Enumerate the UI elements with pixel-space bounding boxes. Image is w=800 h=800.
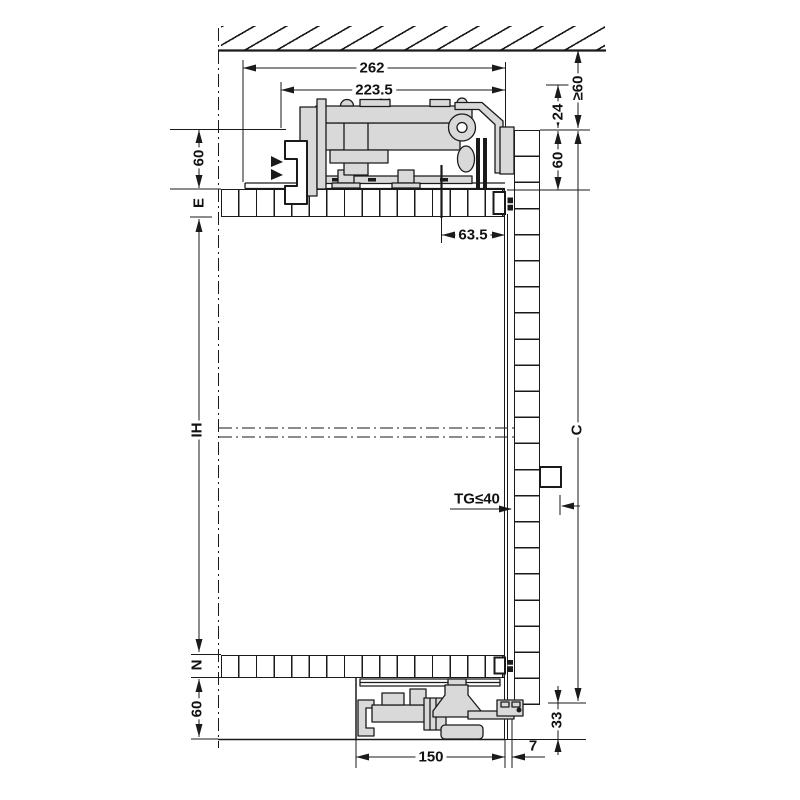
dim-24-label: 24	[549, 102, 568, 123]
dim-ge60-label: ≥60	[569, 74, 588, 103]
extension-lines	[170, 60, 590, 768]
gear-body	[308, 123, 460, 150]
clamp-bar-1	[476, 138, 480, 188]
bottom-panel-end-cap	[495, 658, 506, 674]
dim-tg40-label: TG≤40	[451, 491, 503, 508]
dim-7-label: 7	[526, 738, 540, 755]
adjust-cam	[458, 146, 475, 172]
dim-e-label: E	[190, 196, 209, 210]
top-panel-end-cap	[494, 192, 506, 214]
panel-end-caps	[494, 192, 514, 674]
adjust-mark-1	[271, 156, 283, 167]
top-running-gear	[245, 95, 514, 218]
dimension-lines	[199, 50, 580, 757]
hanger-bolt-right	[398, 170, 414, 183]
dim-63-5-label: 63.5	[455, 227, 490, 244]
door-top-bracket	[500, 127, 514, 174]
dim-n-label: N	[188, 658, 207, 673]
dim-223-5-label: 223.5	[352, 82, 396, 99]
screw-dome-1	[341, 100, 354, 106]
guide-foot	[441, 725, 483, 739]
dim-262-label: 262	[356, 60, 387, 77]
dim-c-label: C	[568, 423, 587, 438]
roller-axle	[457, 123, 467, 133]
dim-60-left-top-label: 60	[190, 148, 209, 169]
dim-150-label: 150	[415, 749, 446, 766]
dim-ih-label: IH	[188, 421, 207, 440]
rail-bar	[316, 106, 472, 123]
clamp-bar-2	[483, 138, 487, 188]
dim-60-left-bottom-label: 60	[188, 699, 207, 720]
dim-33-label: 33	[548, 710, 567, 731]
diagram-linework	[0, 0, 800, 800]
bottom-guide	[358, 679, 523, 739]
gear-column	[344, 123, 368, 175]
fitting-cross-section-diagram: 262 223.5 63.5 150 7 TG≤40 60 E IH N 60 …	[0, 0, 800, 800]
left-c-bracket	[285, 141, 307, 204]
dim-60-right-label: 60	[549, 150, 568, 171]
adjust-mark-2	[271, 169, 283, 180]
